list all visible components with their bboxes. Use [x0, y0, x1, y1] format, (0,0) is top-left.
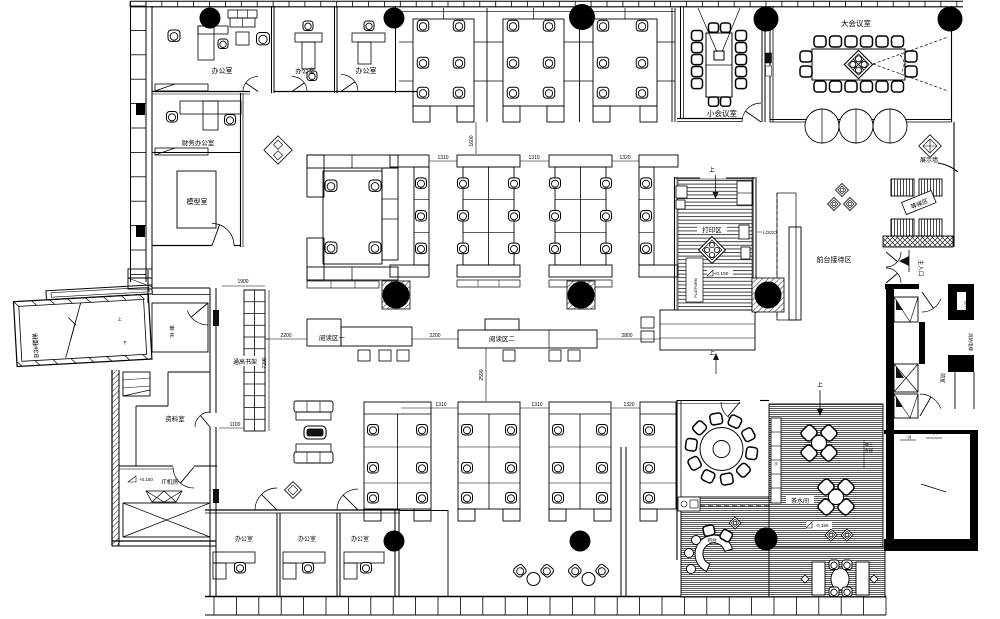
svg-text:1320: 1320: [623, 402, 634, 408]
svg-text:模型室: 模型室: [187, 197, 208, 206]
svg-text:IT机房: IT机房: [161, 478, 178, 486]
svg-text:管井: 管井: [963, 301, 970, 310]
svg-text:2800: 2800: [621, 333, 632, 339]
svg-text:茶水间: 茶水间: [791, 497, 809, 505]
svg-text:展示墙: 展示墙: [920, 156, 938, 164]
svg-text:办公室: 办公室: [356, 66, 377, 75]
svg-text:1100: 1100: [230, 422, 241, 428]
svg-text:资料室: 资料室: [165, 414, 185, 423]
svg-text:1310: 1310: [528, 155, 539, 161]
svg-text:办公室: 办公室: [212, 66, 233, 75]
svg-text:沙: 沙: [774, 461, 778, 466]
svg-text:上: 上: [117, 316, 122, 322]
svg-text:2590: 2590: [479, 369, 485, 380]
svg-text:2200: 2200: [429, 333, 440, 339]
svg-text:大样: 大样: [865, 447, 873, 454]
svg-text:LOGO: LOGO: [763, 230, 777, 236]
svg-text:1310: 1310: [531, 402, 542, 408]
svg-text:+0.150: +0.150: [714, 271, 729, 277]
svg-text:吧台: 吧台: [708, 537, 717, 544]
svg-text:-0.150: -0.150: [816, 523, 829, 528]
svg-text:通高书架: 通高书架: [233, 358, 257, 366]
svg-text:+0.150: +0.150: [139, 477, 153, 482]
svg-text:前室: 前室: [939, 373, 946, 383]
svg-text:上: 上: [817, 381, 823, 389]
svg-text:阅读区二: 阅读区二: [489, 334, 516, 343]
svg-text:办公室: 办公室: [351, 535, 369, 543]
svg-text:7200: 7200: [262, 357, 268, 368]
svg-text:下: 下: [905, 434, 911, 439]
svg-text:办公室: 办公室: [298, 535, 316, 543]
svg-text:1320: 1320: [619, 155, 630, 161]
svg-text:小会议室: 小会议室: [707, 108, 737, 118]
svg-text:井: 井: [169, 332, 174, 339]
svg-text:办公室: 办公室: [295, 66, 315, 75]
svg-text:上: 上: [709, 349, 715, 357]
svg-text:做上: 做上: [865, 441, 873, 448]
svg-text:大会议室: 大会议室: [841, 18, 871, 28]
svg-text:前台接待区: 前台接待区: [817, 255, 852, 264]
svg-text:阅读区一: 阅读区一: [319, 333, 346, 342]
svg-text:打印区: 打印区: [702, 225, 722, 234]
svg-text:暖: 暖: [169, 325, 174, 332]
svg-text:上: 上: [709, 166, 715, 174]
svg-text:消防电梯: 消防电梯: [967, 333, 974, 351]
svg-text:1310: 1310: [437, 155, 448, 161]
svg-text:上: 上: [932, 430, 939, 435]
svg-text:PLATFORM: PLATFORM: [694, 278, 698, 297]
svg-text:财务办公室: 财务办公室: [182, 138, 215, 147]
svg-text:1600: 1600: [469, 135, 475, 146]
svg-text:2200: 2200: [280, 333, 291, 339]
svg-text:主入口: 主入口: [917, 260, 925, 277]
svg-text:1310: 1310: [435, 402, 446, 408]
svg-text:1900: 1900: [237, 279, 248, 285]
svg-text:办公室: 办公室: [235, 535, 253, 543]
